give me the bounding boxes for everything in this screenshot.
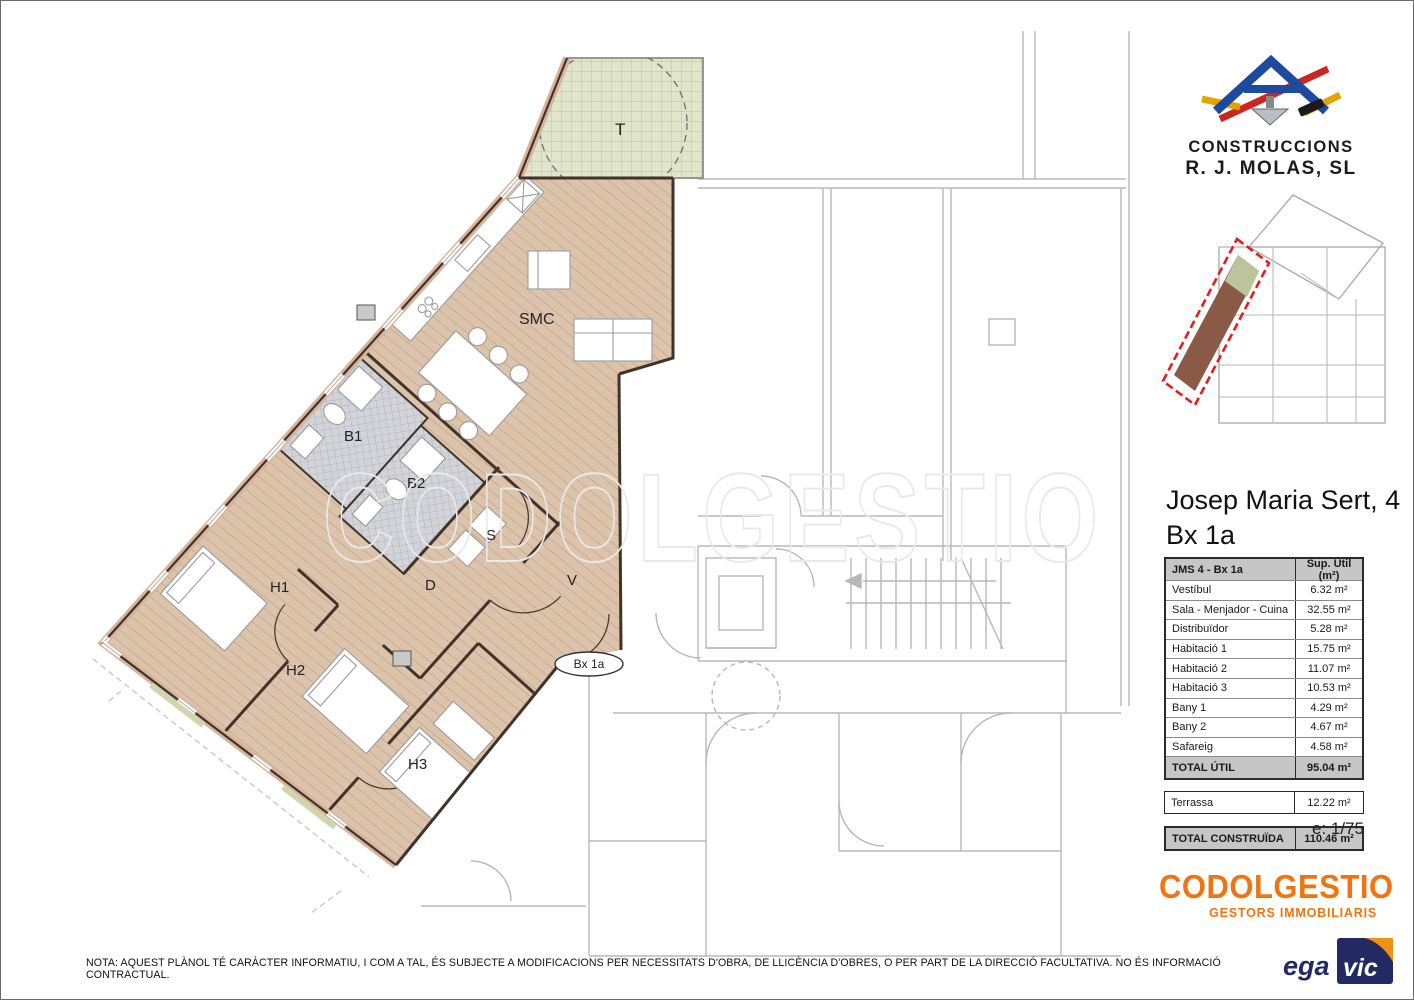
site-key-plan	[1141, 183, 1403, 451]
room-label-living: SMC	[519, 311, 555, 328]
builder-name-line2: R. J. MOLAS, SL	[1161, 158, 1381, 180]
egavic-suffix: vic	[1343, 954, 1378, 982]
total-util-value: 95.04 m²	[1296, 762, 1362, 774]
armchair	[528, 251, 570, 289]
surface-table-block: JMS 4 - Bx 1a Sup. Útil (m²) Vestíbul6.3…	[1164, 557, 1364, 851]
disclaimer-note: NOTA: AQUEST PLÀNOL TÉ CARÀCTER INFORMAT…	[86, 957, 1266, 981]
total-util-label: TOTAL ÚTIL	[1166, 757, 1296, 778]
table-row: Distribuïdor5.28 m²	[1166, 619, 1362, 639]
table-row: Bany 24.67 m²	[1166, 717, 1362, 737]
room-area: 5.28 m²	[1296, 623, 1362, 635]
table-row: Vestíbul6.32 m²	[1166, 580, 1362, 600]
agency-subtitle: GESTORS IMMOBILIARIS	[1159, 906, 1377, 920]
room-label-bath1: B1	[344, 428, 362, 445]
scale-label: e: 1/75	[1164, 819, 1364, 839]
table-row: Sala - Menjador - Cuina32.55 m²	[1166, 600, 1362, 620]
unit-badge-label: Bx 1a	[574, 657, 605, 671]
room-area: 32.55 m²	[1296, 604, 1362, 616]
room-name: Safareig	[1166, 738, 1296, 757]
room-label-bed1: H1	[270, 579, 289, 596]
terrace-area	[519, 49, 703, 197]
egavic-logo: ega vic	[1281, 929, 1401, 991]
terrassa-label: Terrassa	[1165, 792, 1295, 813]
surface-table-header-area: Sup. Útil (m²)	[1296, 558, 1362, 582]
terrassa-value: 12.22 m²	[1295, 797, 1363, 809]
floor-plan: T SMC B1 B2 S D V H1 H2 H3 Bx 1a CODOLGE…	[1, 1, 1141, 1001]
table-row: Habitació 310.53 m²	[1166, 678, 1362, 698]
surface-table-header-name: JMS 4 - Bx 1a	[1166, 559, 1296, 580]
egavic-prefix: ega	[1283, 951, 1330, 981]
surface-table: JMS 4 - Bx 1a Sup. Útil (m²) Vestíbul6.3…	[1164, 557, 1364, 780]
plan-sheet: { "branding": { "builder_line1": "CONSTR…	[0, 0, 1414, 1000]
room-area: 4.29 m²	[1296, 702, 1362, 714]
room-name: Vestíbul	[1166, 581, 1296, 600]
room-label-bed2: H2	[286, 662, 305, 679]
builder-logo-icon	[1186, 49, 1356, 129]
side-panel: CONSTRUCCIONS R. J. MOLAS, SL Josep Mari…	[1139, 1, 1405, 1001]
unit-badge: Bx 1a	[555, 652, 623, 676]
agency-logo-block: CODOLGESTIO GESTORS IMMOBILIARIS	[1159, 869, 1377, 920]
room-area: 6.32 m²	[1296, 584, 1362, 596]
sheet-title-line1: Josep Maria Sert, 4	[1166, 483, 1400, 518]
room-label-terrace: T	[615, 120, 625, 139]
total-util-row: TOTAL ÚTIL 95.04 m²	[1166, 756, 1362, 778]
table-row: Habitació 115.75 m²	[1166, 639, 1362, 659]
surface-table-header: JMS 4 - Bx 1a Sup. Útil (m²)	[1166, 559, 1362, 580]
room-name: Habitació 1	[1166, 640, 1296, 659]
room-area: 15.75 m²	[1296, 643, 1362, 655]
agency-name: CODOLGESTIO	[1159, 868, 1377, 907]
room-area: 11.07 m²	[1296, 663, 1362, 675]
room-area: 4.58 m²	[1296, 741, 1362, 753]
room-name: Habitació 2	[1166, 659, 1296, 678]
terrassa-row: Terrassa 12.22 m²	[1164, 791, 1364, 814]
room-name: Sala - Menjador - Cuina	[1166, 601, 1296, 620]
sheet-title-line2: Bx 1a	[1166, 518, 1400, 553]
room-name: Bany 1	[1166, 699, 1296, 718]
room-name: Bany 2	[1166, 718, 1296, 737]
room-area: 10.53 m²	[1296, 682, 1362, 694]
room-name: Habitació 3	[1166, 679, 1296, 698]
table-row: Safareig4.58 m²	[1166, 737, 1362, 757]
table-row: Habitació 211.07 m²	[1166, 658, 1362, 678]
builder-logo-block: CONSTRUCCIONS R. J. MOLAS, SL	[1161, 49, 1381, 180]
room-name: Distribuïdor	[1166, 620, 1296, 639]
room-label-bed3: H3	[408, 756, 427, 773]
room-area: 4.67 m²	[1296, 721, 1362, 733]
watermark: CODOLGESTIO	[323, 449, 1103, 588]
builder-name-line1: CONSTRUCCIONS	[1161, 138, 1381, 157]
table-row: Bany 14.29 m²	[1166, 698, 1362, 718]
sheet-title: Josep Maria Sert, 4 Bx 1a	[1166, 483, 1400, 553]
